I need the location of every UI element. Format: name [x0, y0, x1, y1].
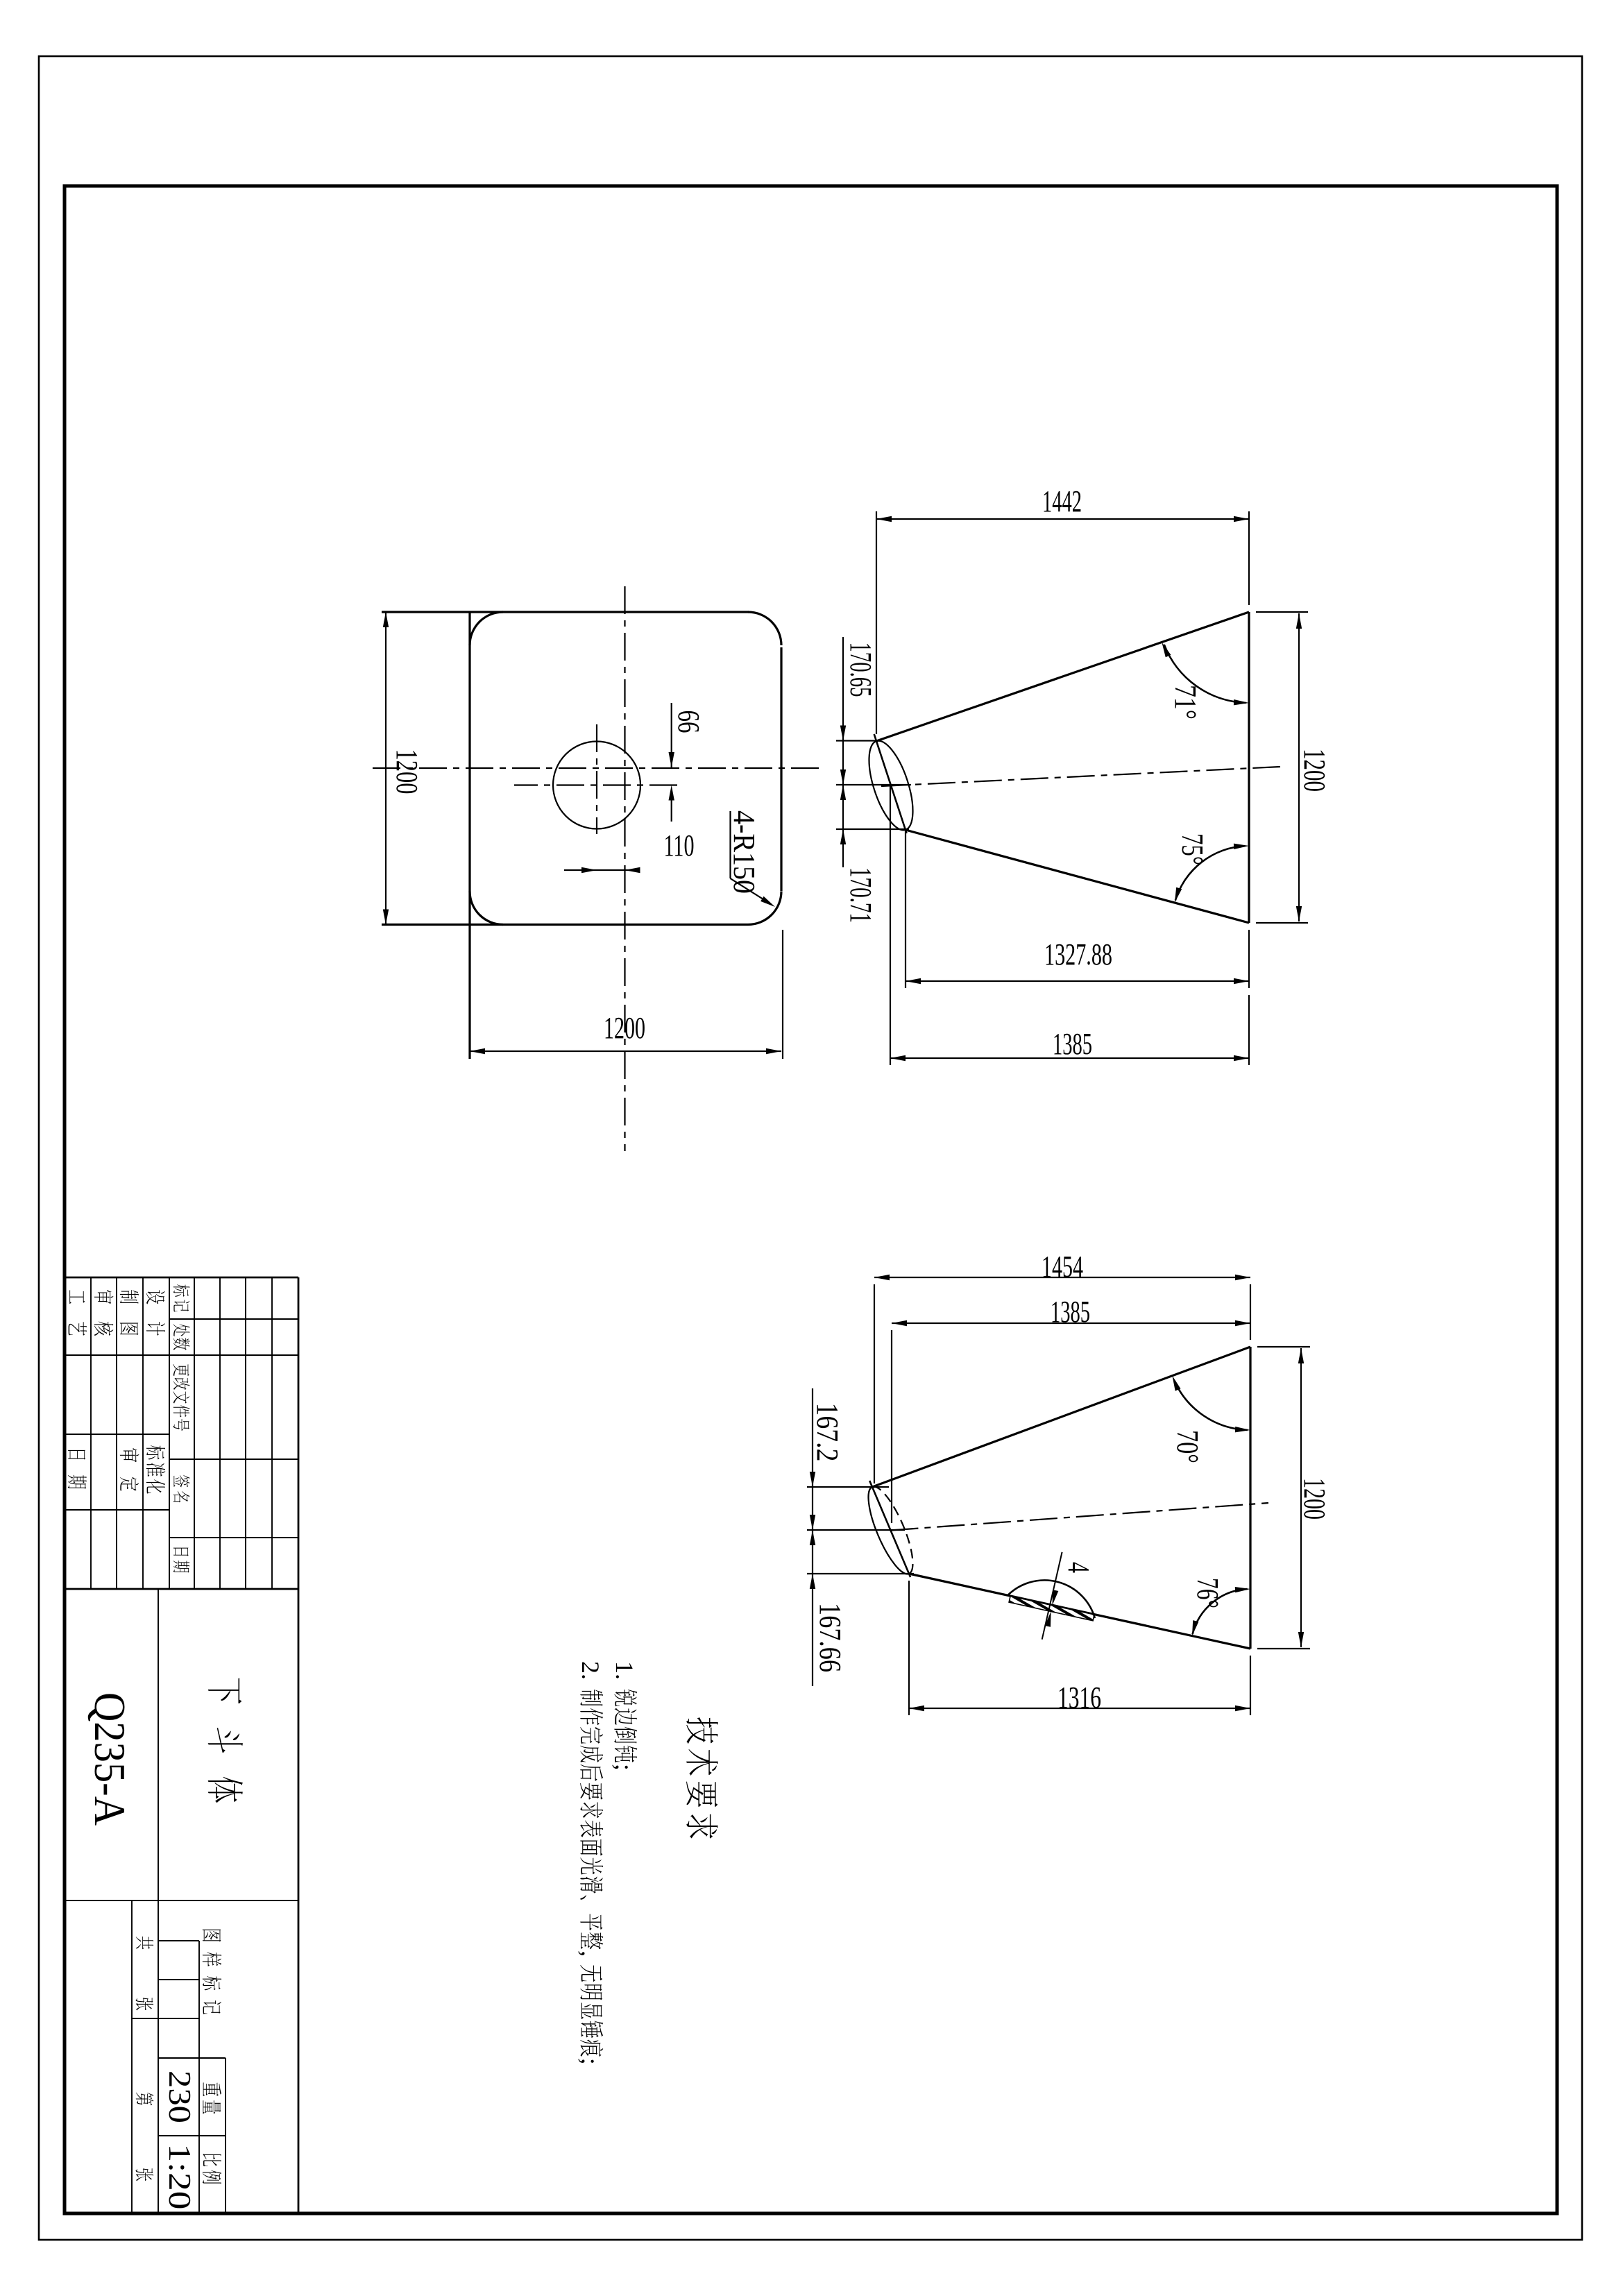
svg-text:;: ;	[611, 1764, 638, 1771]
svg-text:75°: 75°	[1175, 833, 1209, 865]
svg-text:1454: 1454	[1042, 1250, 1083, 1284]
svg-text:4-R150: 4-R150	[727, 810, 761, 894]
svg-text:,: ,	[577, 1950, 604, 1963]
svg-text:110: 110	[664, 828, 695, 862]
svg-text:2.: 2.	[577, 1661, 604, 1686]
svg-text:1200: 1200	[604, 1011, 645, 1045]
svg-text:71°: 71°	[1169, 685, 1203, 720]
svg-text:1327.88: 1327.88	[1044, 937, 1112, 971]
svg-text:1:20: 1:20	[162, 2144, 197, 2210]
svg-text:1200: 1200	[1298, 1478, 1332, 1520]
svg-text:230: 230	[162, 2070, 197, 2123]
svg-text:1200: 1200	[1298, 749, 1332, 792]
svg-text:1385: 1385	[1051, 1295, 1090, 1329]
svg-text:4: 4	[1062, 1562, 1096, 1573]
svg-text:1316: 1316	[1057, 1681, 1101, 1715]
svg-text:1200: 1200	[390, 749, 424, 794]
svg-text:167.66: 167.66	[813, 1603, 847, 1672]
svg-text:167.2: 167.2	[810, 1403, 844, 1462]
svg-text:66: 66	[672, 711, 706, 733]
svg-text:1442: 1442	[1042, 484, 1082, 518]
svg-text:170.71: 170.71	[844, 867, 878, 923]
svg-text:70°: 70°	[1171, 1430, 1205, 1463]
svg-text:Q235-A: Q235-A	[85, 1692, 135, 1826]
svg-text:170.65: 170.65	[844, 643, 878, 697]
svg-text:1385: 1385	[1053, 1027, 1092, 1061]
svg-text:76°: 76°	[1191, 1578, 1225, 1608]
svg-text:1.: 1.	[611, 1661, 638, 1686]
svg-text:;: ;	[577, 2058, 604, 2065]
